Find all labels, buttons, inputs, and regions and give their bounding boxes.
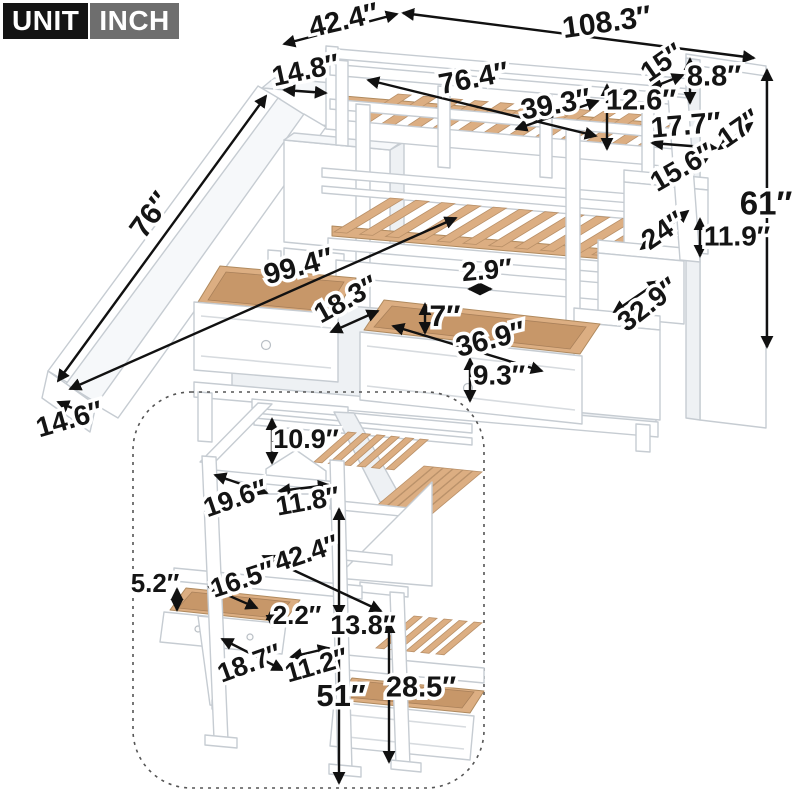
dimension-inset-42-4-label: 42.4″ <box>271 529 343 578</box>
unit-label: UNIT <box>3 3 88 39</box>
dimension-main-61-label: 61″ <box>740 185 793 222</box>
dimension-main-108-3-label: 108.3″ <box>560 0 653 45</box>
diagram-page: 42.4″108.3″14.8″76.4″39.3″12.6″15″8.8″17… <box>0 0 800 800</box>
dimension-inset-5-2-label: 5.2″ <box>131 568 180 598</box>
dimension-main-14-6-label: 14.6″ <box>33 395 107 444</box>
dimension-main-9-3-label: 9.3″ <box>473 359 525 390</box>
dimension-main-7-label: 7″ <box>429 300 460 333</box>
dimension-inset-10-9-label: 10.9″ <box>273 424 339 454</box>
dimension-main-2-9-label: 2.9″ <box>460 253 513 287</box>
unit-badge: UNIT INCH <box>3 3 179 39</box>
dimension-inset-13-8-label: 13.8″ <box>330 610 396 640</box>
dimension-main-11-9-label: 11.9″ <box>704 220 770 251</box>
dimension-main-8-8-label: 8.8″ <box>687 61 741 93</box>
bunk-bed-dimension-diagram: 42.4″108.3″14.8″76.4″39.3″12.6″15″8.8″17… <box>0 0 800 800</box>
dimension-inset-28-5-label: 28.5″ <box>386 672 456 704</box>
dimension-inset-51-label: 51″ <box>316 678 365 713</box>
desk-drawer-knob <box>247 634 253 640</box>
dimension-inset-2-2-label: 2.2″ <box>273 600 322 630</box>
dimension-main-42-4-label: 42.4″ <box>306 0 382 44</box>
inch-label: INCH <box>90 3 178 39</box>
dimension-main-17-7-label: 17.7″ <box>649 107 722 145</box>
drawer-1-knob <box>262 341 271 350</box>
